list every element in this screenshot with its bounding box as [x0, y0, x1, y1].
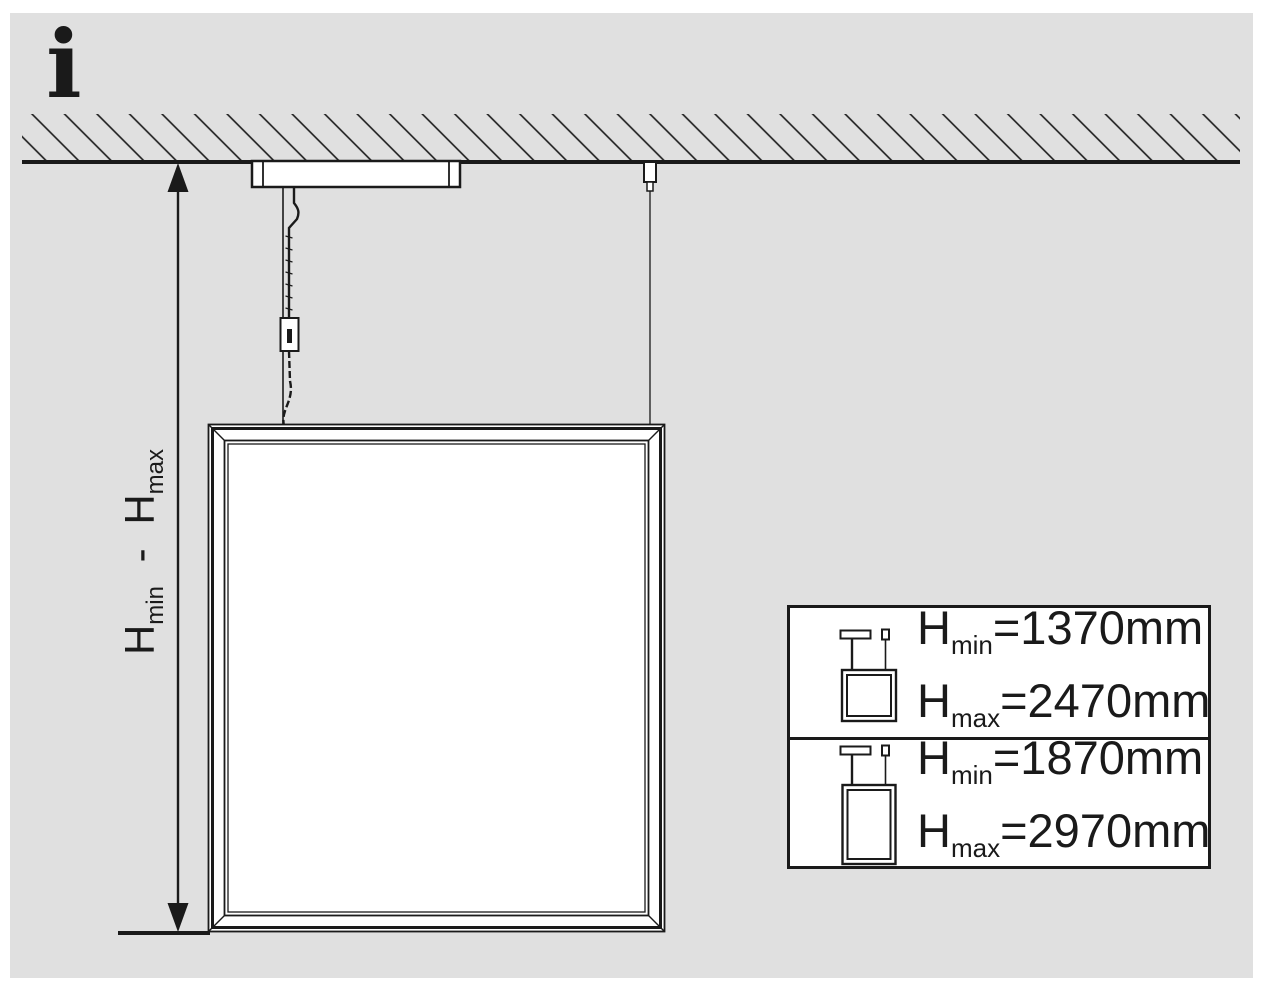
info-icon: i: [46, 16, 82, 115]
portrait-panel-suspended-icon: [833, 741, 903, 866]
suspension-fitting-right: [644, 162, 656, 425]
ceiling-hatch: [22, 114, 1240, 161]
dimension-arrow: [168, 163, 189, 932]
dimension-range-label: Hmin - Hmax: [110, 422, 170, 682]
hmin-spec: Hmin=1370mm: [917, 600, 1210, 673]
hmin-label: Hmin: [116, 586, 163, 655]
square-panel-suspended-icon: [833, 621, 903, 725]
light-panel: [209, 425, 665, 932]
hmax-label: Hmax: [116, 449, 163, 525]
hmin-spec: Hmin=1870mm: [917, 730, 1210, 803]
hmax-spec: Hmax=2970mm: [917, 803, 1210, 876]
spec-table: Hmin=1370mm Hmax=2470mm Hmin=1870mm Hmax…: [787, 605, 1211, 869]
arrowhead-up: [168, 163, 189, 192]
spec-row-square-panel: Hmin=1370mm Hmax=2470mm: [790, 608, 1208, 737]
range-separator: -: [116, 548, 163, 562]
arrowhead-down: [168, 903, 189, 932]
manual-page: { "colors": { "background": "#e0e0e0", "…: [0, 0, 1266, 996]
spec-row-portrait-panel: Hmin=1870mm Hmax=2970mm: [790, 737, 1208, 866]
driver-box: [252, 161, 460, 187]
